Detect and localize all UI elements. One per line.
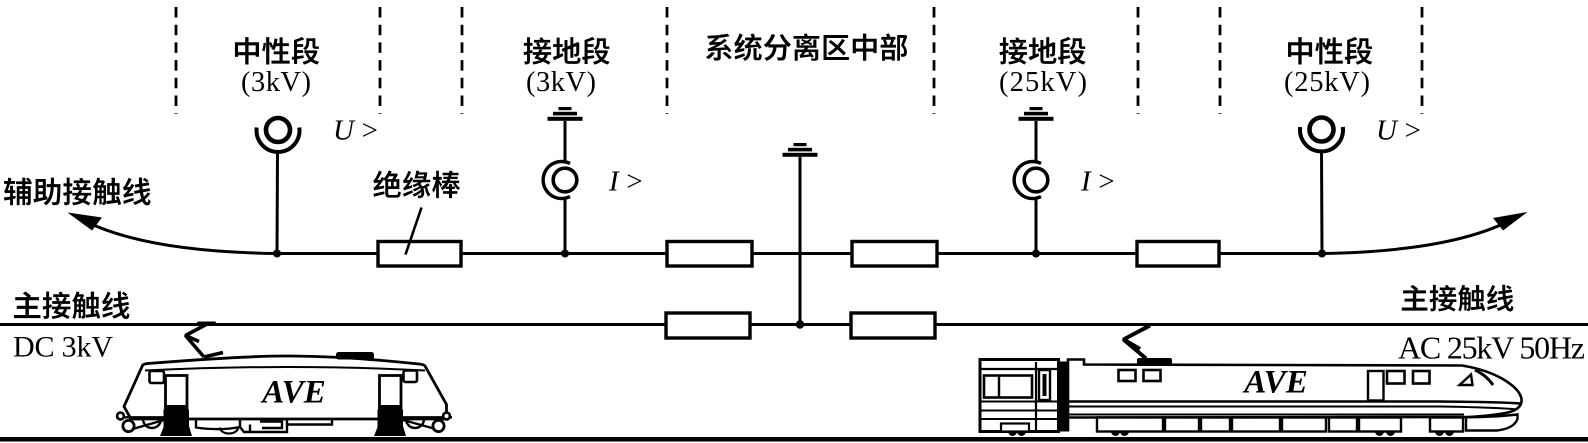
svg-text:I >: I > bbox=[1080, 166, 1116, 198]
svg-text:(25kV): (25kV) bbox=[1284, 67, 1370, 98]
svg-text:DC 3kV: DC 3kV bbox=[13, 331, 113, 364]
svg-text:AVE: AVE bbox=[260, 375, 326, 411]
svg-text:(3kV): (3kV) bbox=[241, 67, 311, 98]
svg-text:(25kV): (25kV) bbox=[999, 67, 1087, 98]
svg-text:AC 25kV 50Hz: AC 25kV 50Hz bbox=[1398, 330, 1585, 366]
svg-text:I >: I > bbox=[608, 166, 644, 198]
svg-text:U >: U > bbox=[1376, 115, 1422, 147]
svg-text:U >: U > bbox=[333, 115, 379, 147]
svg-text:AVE: AVE bbox=[1242, 365, 1308, 401]
svg-text:(3kV): (3kV) bbox=[526, 67, 596, 98]
